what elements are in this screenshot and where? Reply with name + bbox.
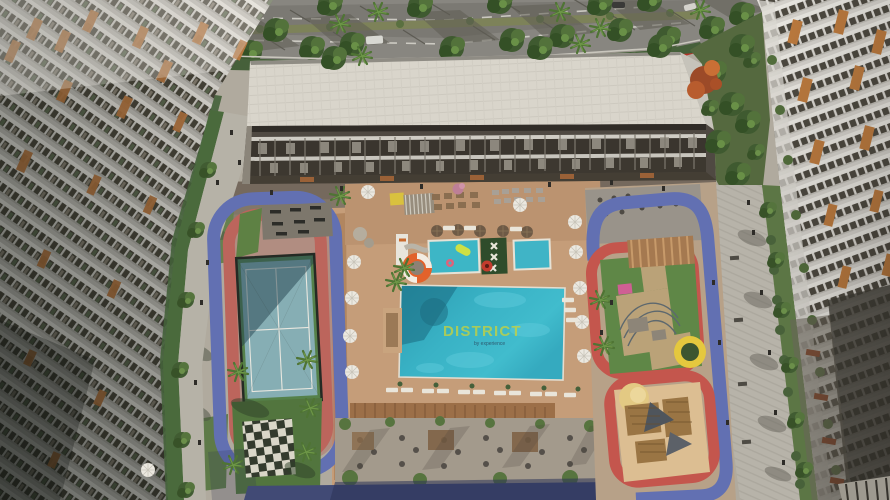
svg-text:by experience: by experience — [474, 341, 505, 347]
svg-text:DISTRICT: DISTRICT — [443, 323, 522, 340]
